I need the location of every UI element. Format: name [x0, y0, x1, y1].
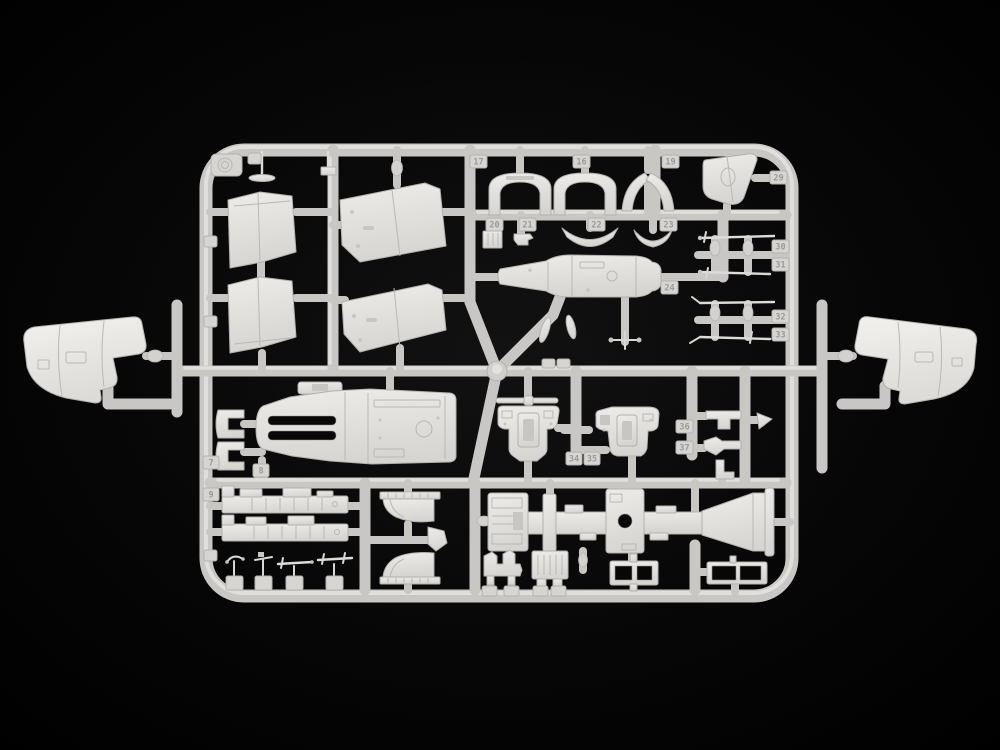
- part-number-34: 34: [569, 455, 579, 465]
- photo-of-model-kit-sprue: 17 16 19 20 21 22 23 24 29 30 31 32 33 7…: [0, 0, 1000, 750]
- part-number-17: 17: [473, 158, 483, 168]
- part-number-tag-30: 30: [772, 240, 789, 253]
- part-number-tag-31: 31: [772, 258, 789, 271]
- small-box-part: [483, 231, 502, 248]
- corner-tab: [211, 154, 242, 176]
- part-number-tag-35: 35: [584, 452, 600, 465]
- part-number-tag-16: 16: [573, 155, 590, 168]
- part-number-tag-17: 17: [470, 155, 487, 168]
- part-number-tag-7: 7: [203, 456, 219, 469]
- part-number-tag-20: 20: [486, 218, 503, 231]
- part-number-tag-19: 19: [662, 155, 679, 168]
- part-number-tag-36: 36: [676, 420, 693, 433]
- part-number-36: 36: [679, 423, 689, 433]
- part-number-tag-22: 22: [588, 218, 605, 231]
- part-number-7: 7: [208, 459, 213, 469]
- part-number-24: 24: [664, 284, 674, 294]
- part-number-37: 37: [679, 444, 689, 454]
- part-number-30: 30: [775, 243, 785, 253]
- part-number-9: 9: [208, 491, 213, 501]
- part-number-tag-24: 24: [661, 281, 678, 294]
- part-number-16: 16: [576, 158, 586, 168]
- part-number-tag-32: 32: [772, 310, 789, 323]
- part-number-tag-9: 9: [203, 488, 219, 501]
- part-number-35: 35: [587, 455, 597, 465]
- part-number-22: 22: [591, 221, 601, 231]
- part-number-tag-21: 21: [519, 218, 536, 231]
- part-number-tag-37: 37: [676, 441, 693, 454]
- part-number-31: 31: [775, 261, 785, 271]
- part-number-tag-33: 33: [772, 328, 789, 341]
- part-number-33: 33: [775, 331, 785, 341]
- part-number-8: 8: [258, 467, 263, 477]
- part-number-tag-34: 34: [566, 452, 582, 465]
- part-number-23: 23: [663, 221, 673, 231]
- runner-junction-boss-highlight: [492, 364, 502, 374]
- part-number-20: 20: [489, 221, 499, 231]
- part-number-19: 19: [665, 158, 675, 168]
- part-number-tag-8: 8: [253, 464, 269, 477]
- part-number-21: 21: [522, 221, 532, 231]
- part-number-tag-23: 23: [660, 218, 677, 231]
- part-number-tag-29: 29: [770, 171, 787, 184]
- part-number-29: 29: [773, 174, 783, 184]
- part-number-32: 32: [775, 313, 785, 323]
